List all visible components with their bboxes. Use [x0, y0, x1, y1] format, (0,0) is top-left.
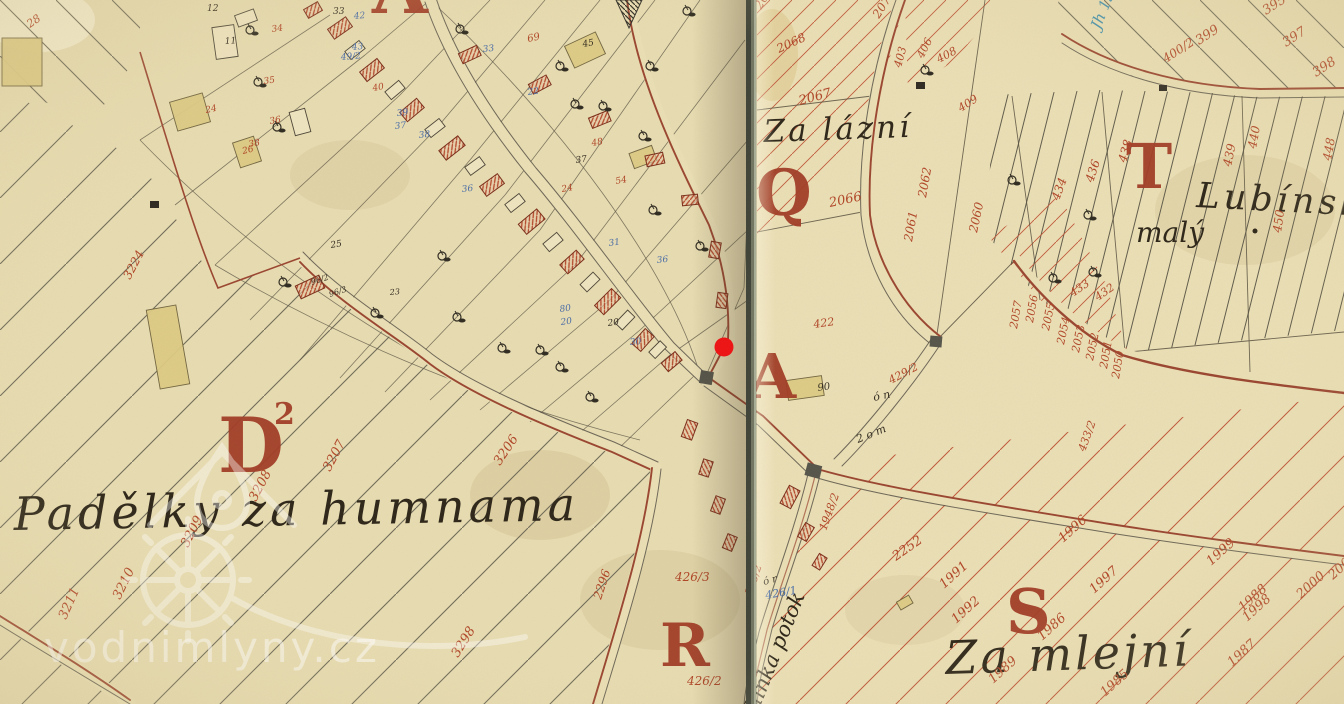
- vignette: [0, 0, 1344, 704]
- cadastral-map[interactable]: D 2 Q A T R S A Padělky za humnama Za lá…: [0, 0, 1344, 704]
- historical-cadastral-map-viewport[interactable]: D 2 Q A T R S A Padělky za humnama Za lá…: [0, 0, 1344, 704]
